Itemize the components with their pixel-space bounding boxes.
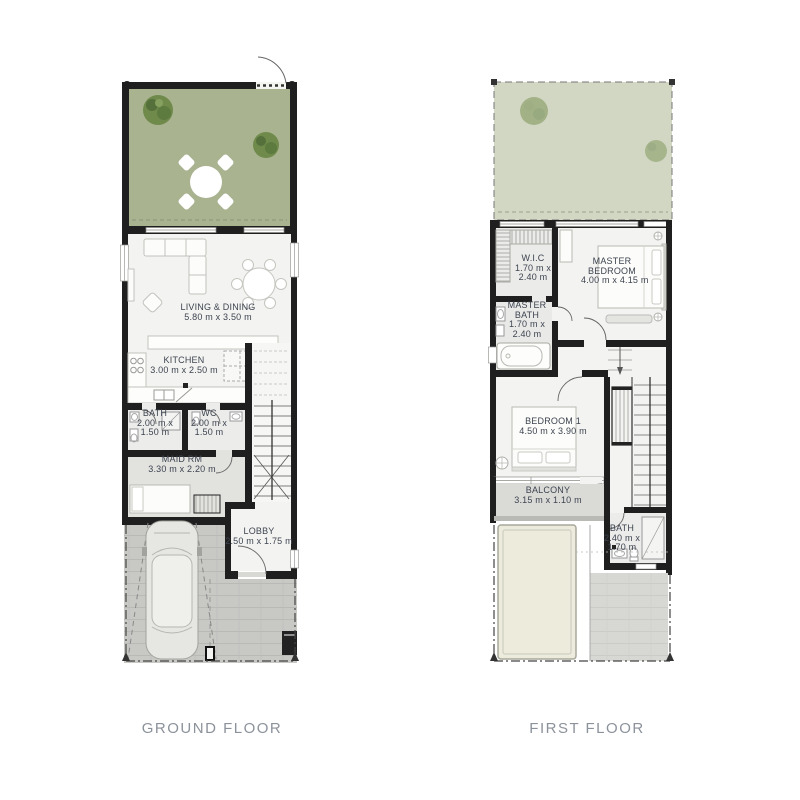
room-name: MASTER BEDROOM (581, 257, 643, 276)
room-dims: 1.70 m x 2.40 m (505, 320, 549, 339)
gate (256, 57, 286, 89)
room-dims: 4.50 m x 3.90 m (507, 427, 599, 437)
tree-icon (520, 97, 548, 125)
room-label-master-bedroom: MASTER BEDROOM 4.00 m x 4.15 m (581, 257, 643, 286)
room-dims: 1.70 m x 2.40 m (510, 264, 556, 283)
tree-icon (253, 132, 279, 158)
room-label-wc: WC 2.00 m x 1.50 m (186, 409, 232, 438)
room-label-lobby: LOBBY 2.50 m x 1.75 m (213, 527, 305, 546)
room-label-living-dining: LIVING & DINING 5.80 m x 3.50 m (163, 303, 273, 322)
room-label-bath-first: BATH 2.40 m x 1.70 m (598, 524, 646, 553)
floorplan-canvas: LIVING & DINING 5.80 m x 3.50 m KITCHEN … (0, 0, 800, 800)
room-label-master-bath: MASTER BATH 1.70 m x 2.40 m (505, 301, 549, 339)
car-icon (142, 521, 202, 659)
lamp-icon (654, 232, 662, 240)
garden-faded (491, 79, 675, 220)
staircase (252, 343, 291, 502)
room-label-balcony: BALCONY 3.15 m x 1.10 m (502, 486, 594, 505)
room-dims: 2.00 m x 1.50 m (132, 419, 178, 438)
tree-icon (143, 95, 173, 125)
lamp-icon (496, 457, 508, 469)
room-label-wic: W.I.C 1.70 m x 2.40 m (510, 254, 556, 283)
room-dims: 5.80 m x 3.50 m (163, 313, 273, 323)
room-dims: 2.40 m x 1.70 m (598, 534, 646, 553)
room-dims: 2.00 m x 1.50 m (186, 419, 232, 438)
canopy (498, 525, 576, 659)
first-floor-plan (486, 55, 686, 680)
room-label-kitchen: KITCHEN 3.00 m x 2.50 m (138, 356, 230, 375)
room-dims: 3.15 m x 1.10 m (502, 496, 594, 506)
tv-console (128, 269, 134, 301)
first-floor-title: FIRST FLOOR (529, 720, 644, 738)
bathtub (497, 343, 550, 369)
garden (122, 57, 297, 228)
room-label-bedroom1: BEDROOM 1 4.50 m x 3.90 m (507, 417, 599, 436)
wardrobe (612, 387, 632, 445)
ground-floor-title: GROUND FLOOR (142, 720, 283, 738)
room-dims: 3.00 m x 2.50 m (138, 366, 230, 376)
room-dims: 3.30 m x 2.20 m (136, 465, 228, 475)
room-dims: 4.00 m x 4.15 m (581, 276, 643, 286)
tree-icon (645, 140, 667, 162)
lamp-icon (654, 313, 662, 321)
room-label-maid-rm: MAID RM 3.30 m x 2.20 m (136, 455, 228, 474)
room-label-bath: BATH 2.00 m x 1.50 m (132, 409, 178, 438)
room-name: MASTER BATH (505, 301, 549, 320)
room-dims: 2.50 m x 1.75 m (213, 537, 305, 547)
